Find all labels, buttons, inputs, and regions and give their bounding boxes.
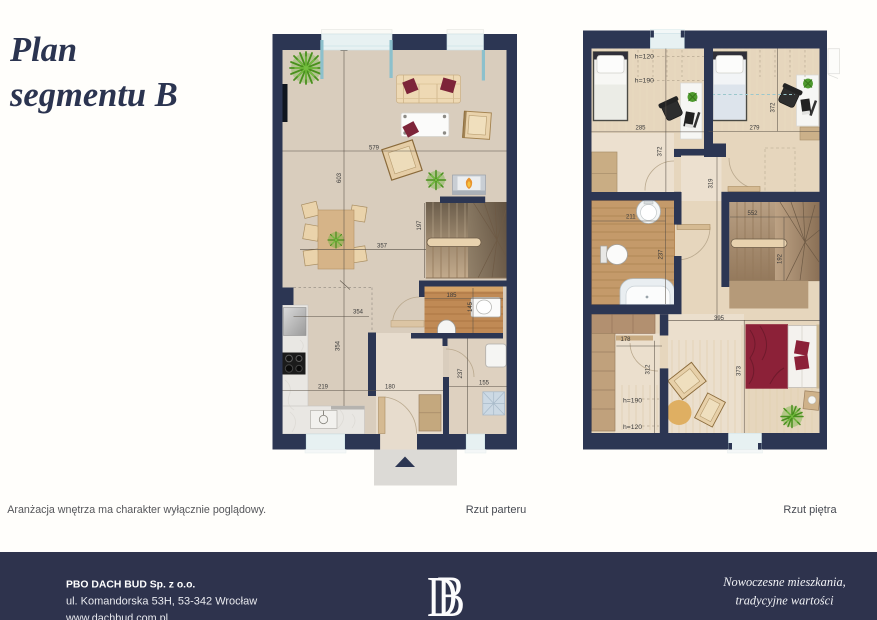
svg-text:Aranżacja wnętrza ma charakter: Aranżacja wnętrza ma charakter wyłącznie… bbox=[7, 504, 266, 516]
svg-text:178: 178 bbox=[621, 337, 632, 343]
svg-text:Plan: Plan bbox=[9, 31, 77, 69]
svg-text:373: 373 bbox=[737, 365, 743, 376]
svg-text:180: 180 bbox=[385, 385, 396, 391]
svg-text:145: 145 bbox=[468, 301, 474, 312]
svg-text:579: 579 bbox=[369, 146, 380, 152]
svg-text:372: 372 bbox=[658, 146, 664, 157]
svg-text:603: 603 bbox=[337, 172, 343, 183]
svg-text:segmentu B: segmentu B bbox=[9, 76, 178, 114]
svg-text:354: 354 bbox=[353, 310, 364, 316]
svg-text:Rzut parteru: Rzut parteru bbox=[466, 504, 527, 516]
svg-text:285: 285 bbox=[636, 126, 647, 132]
svg-text:237: 237 bbox=[659, 249, 665, 260]
svg-text:372: 372 bbox=[771, 102, 777, 113]
svg-text:155: 155 bbox=[479, 381, 490, 387]
svg-text:B: B bbox=[437, 564, 465, 620]
svg-text:www.dachbud.com.pl: www.dachbud.com.pl bbox=[65, 613, 168, 620]
svg-text:tradycyjne wartości: tradycyjne wartości bbox=[735, 594, 834, 608]
svg-text:h=120: h=120 bbox=[635, 54, 654, 61]
svg-text:192: 192 bbox=[778, 253, 784, 264]
svg-text:h=120: h=120 bbox=[623, 424, 642, 431]
svg-text:552: 552 bbox=[748, 211, 759, 217]
svg-text:395: 395 bbox=[714, 316, 725, 322]
svg-text:PBO DACH BUD Sp. z o.o.: PBO DACH BUD Sp. z o.o. bbox=[66, 580, 195, 591]
svg-text:354: 354 bbox=[336, 340, 342, 351]
svg-text:279: 279 bbox=[750, 126, 761, 132]
svg-text:Rzut piętra: Rzut piętra bbox=[783, 504, 837, 516]
svg-text:312: 312 bbox=[646, 364, 652, 375]
svg-text:ul. Komandorska 53H, 53-342 Wr: ul. Komandorska 53H, 53-342 Wrocław bbox=[66, 596, 257, 608]
svg-text:Nowoczesne mieszkania,: Nowoczesne mieszkania, bbox=[722, 575, 846, 589]
svg-text:h=190: h=190 bbox=[635, 78, 654, 85]
svg-text:319: 319 bbox=[709, 178, 715, 189]
svg-text:h=190: h=190 bbox=[623, 398, 642, 405]
svg-text:237: 237 bbox=[458, 368, 464, 379]
svg-text:219: 219 bbox=[318, 385, 329, 391]
svg-text:211: 211 bbox=[626, 215, 636, 221]
svg-text:197: 197 bbox=[417, 220, 423, 231]
svg-text:185: 185 bbox=[447, 293, 458, 299]
svg-text:357: 357 bbox=[377, 244, 388, 250]
